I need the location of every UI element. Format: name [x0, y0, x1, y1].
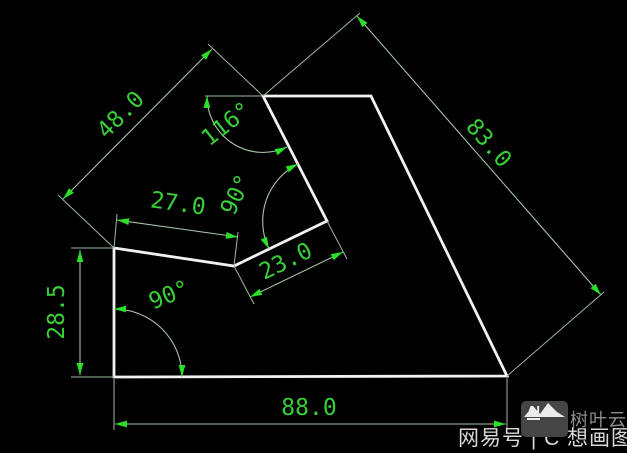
- angle-90-notch: 90°: [216, 164, 298, 249]
- dimension-88: 88.0: [114, 378, 507, 430]
- cad-viewport: 48.0 83.0 116° 90° 27.0: [0, 0, 627, 453]
- brand-text: 树叶云: [570, 406, 627, 432]
- dimension-48-label: 48.0: [92, 86, 150, 144]
- dimension-48: 48.0: [58, 44, 263, 248]
- angle-90-corner-label: 90°: [145, 276, 193, 316]
- angle-90-corner: 90°: [114, 276, 194, 377]
- dimension-28-5-label: 28.5: [44, 284, 70, 339]
- dimension-88-label: 88.0: [281, 395, 336, 421]
- ai-image-logo: AI: [521, 401, 568, 437]
- angle-116: 116°: [197, 96, 287, 152]
- dimension-27-label: 27.0: [149, 187, 207, 220]
- image-placeholder-icon: [524, 401, 565, 417]
- angle-90-notch-label: 90°: [216, 171, 258, 220]
- cad-canvas: 48.0 83.0 116° 90° 27.0: [0, 0, 627, 453]
- dimension-23: 23.0: [234, 221, 347, 304]
- part-outline: [114, 96, 507, 377]
- dimension-23-label: 23.0: [255, 238, 316, 286]
- dimension-28-5: 28.5: [44, 248, 114, 377]
- angle-116-label: 116°: [197, 97, 257, 152]
